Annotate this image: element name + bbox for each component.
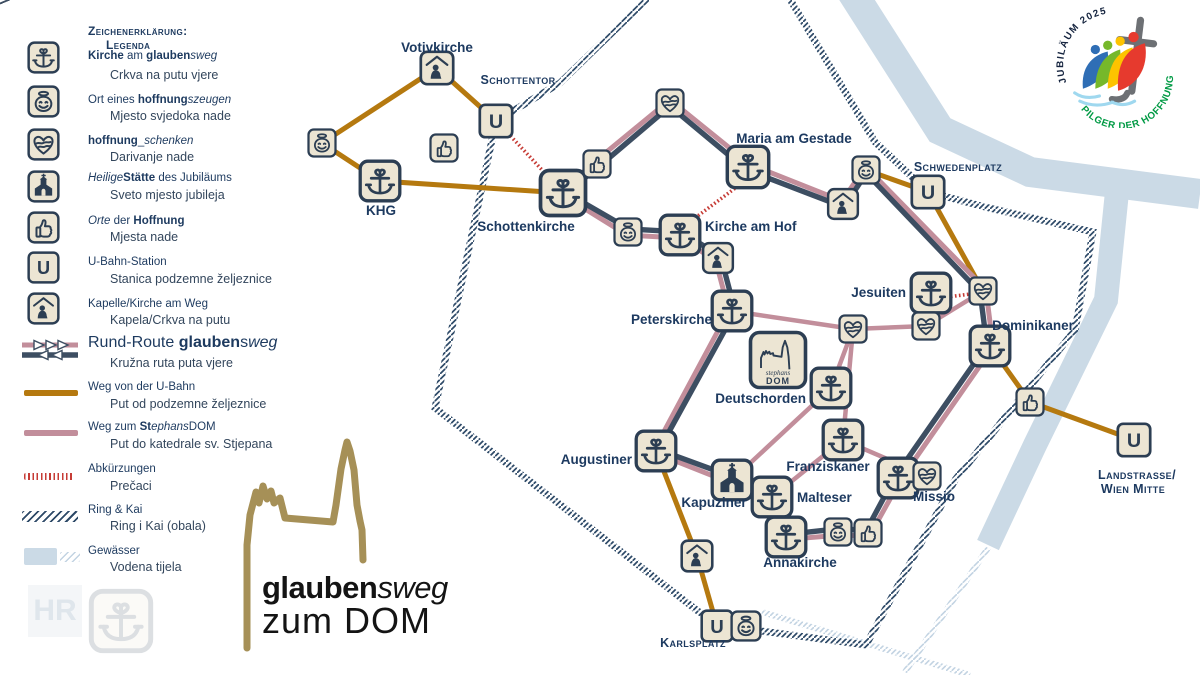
kirche-am-hof-icon [660,215,700,255]
votivkirche-label: Votivkirche [401,40,473,55]
u-landstrasse-label2: Wien Mitte [1101,482,1165,496]
thumbs-moelkerbastei-icon [584,151,611,178]
legend-de-segment: ephans [151,421,189,433]
legend-de-segment: Gewässer [88,545,140,557]
legend-hr-1: Mjesto svjedoka nade [110,109,231,123]
legend-de-2: hoffnung_schenken [88,135,193,147]
legend-sample-chapel [27,292,60,330]
legend-sample-ring-kai [22,511,78,522]
legend-de-segment: hoffnung [138,94,188,106]
heart-stephansplatz-icon [840,316,867,343]
legend-de-segment: Weg von der U-Bahn [88,381,195,393]
legend-de-9: Weg zum StephansDOM [88,421,216,433]
legend-hr-8: Put od podzemne željeznice [110,397,266,411]
legend-de-segment: glauben [146,50,190,62]
stations-layer [309,52,1151,642]
legend-de-segment: schenken [144,135,193,147]
legend-hr-10: Prečaci [110,479,152,493]
legend-de-segment: Ort eines [88,94,138,106]
smiley-karlsplatz-icon [732,612,761,641]
kapuziner-label: Kapuziner [681,495,747,510]
legend-de-10: Abkürzungen [88,463,156,475]
jesuiten-label: Jesuiten [851,285,906,300]
legend-hr-3: Sveto mjesto jubileja [110,188,225,202]
legend-sample-thumbs [27,211,60,249]
legend-de-segment: Heilige [88,172,123,184]
legend-de-segment: Kirche [88,50,124,62]
smiley-morzinplatz-icon [853,157,880,184]
legend-sample-pink-path [24,430,78,436]
ubahn-access-path [322,68,496,143]
chapel-am-hof-icon [703,243,733,273]
smiley-am-hof-icon [615,219,642,246]
legend-de-segment: U-Bahn-Station [88,256,167,268]
legend-hr-5: Stanica podzemne željeznice [110,272,272,286]
legend-hr-12: Vodena tijela [110,560,182,574]
heart-freyung-icon [657,90,684,117]
hr-watermark: HR [28,585,82,637]
legend-de-segment: des Jubiläums [155,172,232,184]
covered-river-line [905,548,988,672]
legend-hr-11: Ring i Kai (obala) [110,519,206,533]
legend-hr-9: Put do katedrale sv. Stjepana [110,437,272,451]
legend-de-segment: Hoffnung [133,215,184,227]
legend-de-12: Gewässer [88,545,140,557]
legend-de-segment: DOM [189,421,216,433]
pilger-der-hoffnung-logo: JUBILÄUM 2025 PILGER DER HOFFNUNG [1052,4,1180,128]
glaubensweg-map-poster: U stephans DOM VotivkircheSchottentorKHG… [0,0,1200,675]
schottenkirche-label: Schottenkirche [477,219,575,234]
chapel-karlsplatz-weg-icon [682,541,713,572]
thumbs-stadtpark-icon [1017,389,1044,416]
kirche-am-hof-label: Kirche am Hof [705,219,797,234]
heart-missio-icon [914,463,941,490]
u-landstrasse-label: Landstrasse/ [1098,468,1176,482]
u-schottentor-label: Schottentor [480,73,555,87]
votivkirche-icon [421,52,453,84]
jesuiten-icon [911,273,951,313]
legend-title-line1: Zeichenerklärung: [88,24,187,38]
legend-de-segment: glauben [179,334,240,351]
legend-de-1: Ort eines hoffnungszeugen [88,94,231,106]
missio-icon [878,458,918,498]
legend-de-segment: Abkürzungen [88,463,156,475]
legend-sample-smiley [27,85,60,123]
legend-de-segment: Orte [88,215,110,227]
legend-hr-4: Mjesta nade [110,230,178,244]
legend-sample-church [27,170,60,208]
thumbs-annagasse-icon [855,520,882,547]
legend-hr-2: Darivanje nade [110,150,194,164]
peterskirche-label: Peterskirche [631,312,713,327]
augustiner-icon [636,431,676,471]
legend-de-segment: Stätte [123,172,155,184]
legend-de-segment: Rund-Route [88,334,179,351]
legend-sample-heart [27,128,60,166]
legend-title: Zeichenerklärung: Legenda [88,24,187,52]
legend-de-segment: Weg zum [88,421,140,433]
legend-de-segment: sweg [190,50,217,62]
legend-sample-kirche [27,41,60,79]
schottenkirche-icon [541,171,586,216]
u-schwedenplatz-icon [912,176,944,208]
legend-de-11: Ring & Kai [88,504,142,516]
legend-sample-water-hatch [60,552,80,562]
deutschorden-icon [811,368,851,408]
legend-de-7: Rund-Route glaubensweg [88,334,277,352]
smiley-annagasse-icon [825,519,852,546]
legend-de-segment: am [124,50,146,62]
legend-de-segment: Kapelle/Kirche am Weg [88,298,208,310]
legend-sample-ubahn [27,251,60,289]
maria-am-gestade-label: Maria am Gestade [736,131,852,146]
khg-icon [360,161,400,201]
khg-label: KHG [366,203,396,218]
u-schottentor-icon [480,105,512,137]
malteser-label: Malteser [797,490,853,505]
deutschorden-label: Deutschorden [715,391,806,406]
kapuziner-icon [712,460,752,500]
legend-hr-6: Kapela/Crkva na putu [110,313,230,327]
thumbs-schottentor-icon [431,135,458,162]
legend-hr-7: Kružna ruta puta vjere [110,356,233,370]
logo-line2: zum DOM [262,603,448,639]
stephansdom-icon [751,333,806,388]
chapel-am-gestade-icon [828,189,858,219]
legend-de-6: Kapelle/Kirche am Weg [88,298,208,310]
legend-de-segment: hoffnung [88,135,138,147]
u-schwedenplatz-label: Schwedenplatz [914,160,1002,174]
legend-de-segment: St [140,421,152,433]
glaubensweg-logo-text: glaubensweg zum DOM [262,572,448,639]
legend-sample-water [24,548,57,565]
legend-de-segment: Ring & Kai [88,504,142,516]
legend-de-segment: s [240,334,248,351]
anchor-watermark [88,584,154,658]
legend-de-0: Kirche am glaubensweg [88,50,217,62]
smiley-votiv-west-icon [309,130,336,157]
legend-sample-shortcut [24,473,74,480]
peterskirche-icon [712,291,752,331]
franziskaner-label: Franziskaner [786,459,870,474]
franziskaner-icon [823,420,863,460]
dominikaner-label: Dominikaner [992,318,1075,333]
annakirche-label: Annakirche [763,555,837,570]
heart-postgasse-icon [970,278,997,305]
legend-de-3: HeiligeStätte des Jubiläums [88,172,232,184]
malteser-icon [752,477,792,517]
augustiner-label: Augustiner [561,452,633,467]
legend: Zeichenerklärung: Legenda Kirche am glau… [0,0,300,675]
legend-hr-0: Crkva na putu vjere [110,68,218,82]
heart-schoenlaterngasse-icon [913,313,940,340]
legend-de-segment: der [110,215,133,227]
shortcut-line [695,186,738,218]
legend-de-segment: weg [248,334,277,351]
legend-sample-brown-path [24,390,78,396]
u-landstrasse-icon [1118,424,1150,456]
logo-line1: glaubensweg [262,572,448,603]
legend-de-segment: szeugen [188,94,231,106]
legend-de-5: U-Bahn-Station [88,256,167,268]
maria-am-gestade-icon [727,146,768,187]
legend-de-8: Weg von der U-Bahn [88,381,195,393]
missio-label: Missio [913,489,955,504]
u-karlsplatz-label: Karlsplatz [660,636,726,650]
legend-sample-rund-route [20,337,82,368]
legend-de-4: Orte der Hoffnung [88,215,184,227]
annakirche-icon [766,517,806,557]
